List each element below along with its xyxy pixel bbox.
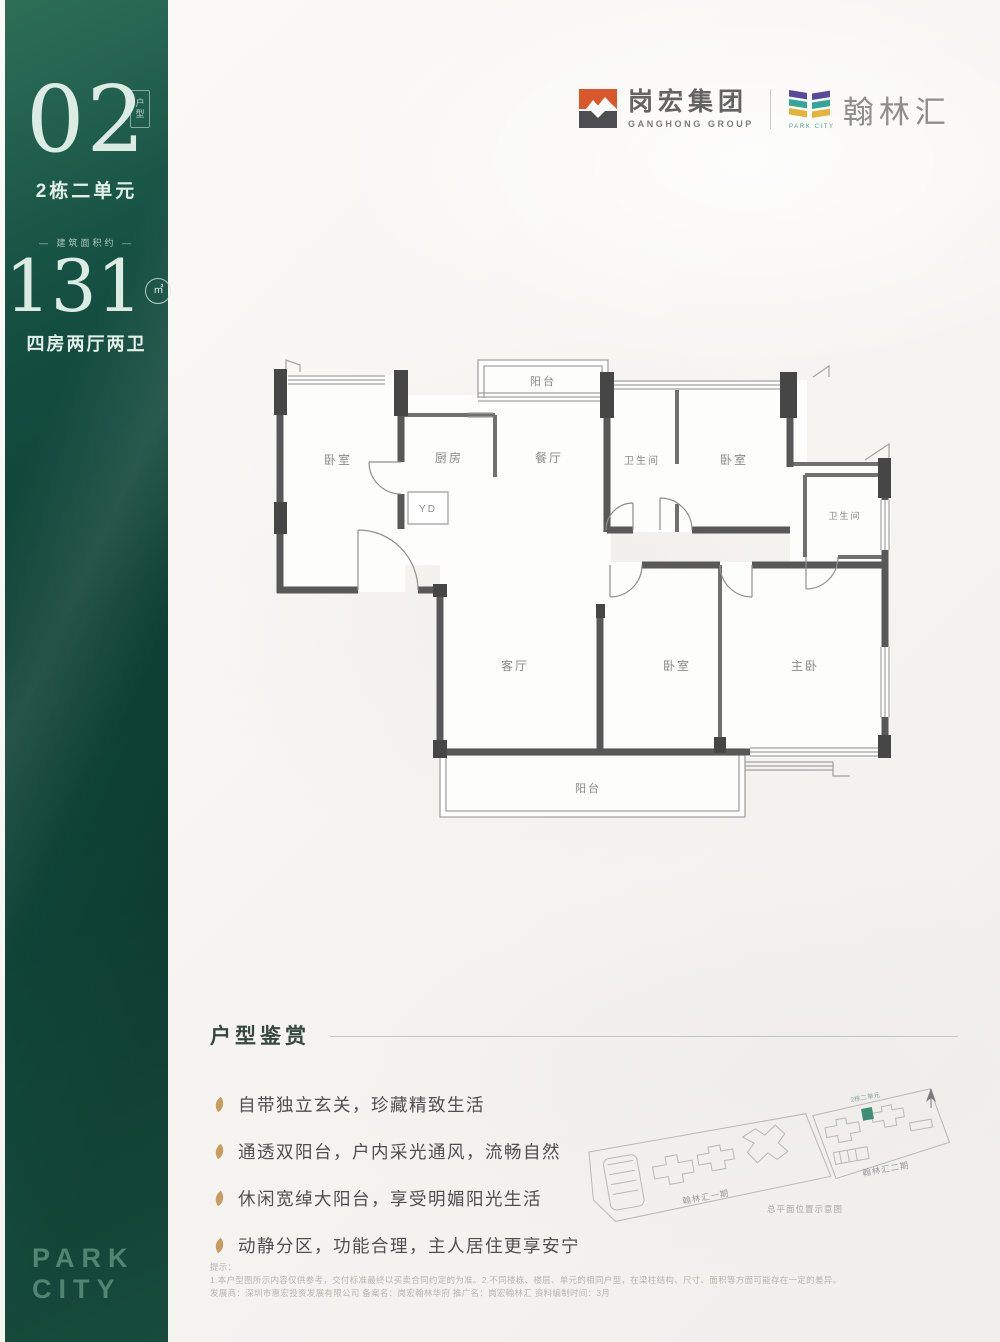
- feature-text-2: 通透双阳台，户内采光通风，流畅自然: [238, 1139, 561, 1164]
- room-label-kitchen: 厨房: [435, 450, 463, 465]
- sitemap-phase1-label: 翰林汇一期: [682, 1188, 731, 1206]
- leaf-bullet-icon: [212, 1097, 227, 1112]
- feature-text-1: 自带独立玄关，珍藏精致生活: [238, 1092, 485, 1117]
- feature-item-2: 通透双阳台，户内采光通风，流畅自然: [214, 1139, 561, 1164]
- disclaimer-title: 提示：: [210, 1261, 880, 1274]
- project-name-cn: 翰林汇: [843, 87, 951, 132]
- room-label-dining: 餐厅: [535, 450, 563, 465]
- room-label-bath1: 卫生间: [624, 454, 660, 467]
- logo-divider: [770, 89, 771, 129]
- feature-item-1: 自带独立玄关，珍藏精致生活: [214, 1092, 485, 1117]
- hanlinhui-logo-icon: PARK CITY: [787, 87, 833, 131]
- room-label-master: 主卧: [791, 659, 819, 673]
- brand-line-park: PARK: [32, 1243, 135, 1274]
- room-label-balcony-top: 阳台: [530, 374, 556, 388]
- feature-text-3: 休闲宽绰大阳台，享受明媚阳光生活: [238, 1186, 542, 1211]
- leaf-bullet-icon: [212, 1238, 227, 1253]
- disclaimer-line1: 1.本户型图所示内容仅供参考，交付标准最终以买卖合同约定的为准。2.不同楼栋、楼…: [210, 1274, 880, 1287]
- leaf-bullet-icon: [212, 1191, 227, 1206]
- disclaimer-line2: 发展商：深圳市惠宏投资发展有限公司 备案名：岗宏翰林华府 推广名：岗宏翰林汇 资…: [210, 1287, 880, 1300]
- room-label-yd: YD: [419, 504, 437, 515]
- layout-description: 四房两厅两卫: [5, 330, 168, 356]
- developer-name-en: GANGHONG GROUP: [628, 119, 754, 129]
- unit-number-row: 02 户型: [5, 74, 168, 166]
- area-label: — 建筑面积约 —: [5, 236, 168, 249]
- disclaimer: 提示： 1.本户型图所示内容仅供参考，交付标准最终以买卖合同约定的为准。2.不同…: [210, 1261, 880, 1301]
- feature-item-3: 休闲宽绰大阳台，享受明媚阳光生活: [214, 1186, 542, 1211]
- highlight-building: [861, 1107, 874, 1121]
- sitemap-caption: 总平面位置示意图: [767, 1204, 843, 1214]
- feature-text-4: 动静分区，功能合理，主人居住更享安宁: [238, 1233, 580, 1258]
- feature-item-4: 动静分区，功能合理，主人居住更享安宁: [214, 1233, 580, 1258]
- unit-number: 02: [26, 74, 147, 166]
- left-brand-band: 02 户型 2栋二单元 — 建筑面积约 — 131㎡ 四房两厅两卫 PARK C…: [5, 0, 168, 1342]
- area-row: 131㎡: [5, 250, 168, 322]
- ganghong-logo-icon: [578, 88, 618, 130]
- room-label-living: 客厅: [501, 658, 529, 673]
- sitemap-highlight-label: 2栋二单元: [850, 1090, 881, 1104]
- area-unit-badge: ㎡: [145, 278, 171, 304]
- project-name-en: PARK CITY: [789, 124, 833, 130]
- unit-name: 2栋二单元: [5, 176, 168, 203]
- leaf-bullet-icon: [212, 1144, 227, 1159]
- section-title-features: 户型鉴赏: [210, 1020, 310, 1050]
- room-label-bedroom3: 卧室: [663, 658, 691, 673]
- area-value: 131: [5, 244, 142, 328]
- room-label-bath2: 卫生间: [828, 510, 861, 521]
- site-plan-map: 翰林汇一期 2栋二单元 翰林汇二期 总平面位置示意图: [575, 1080, 950, 1240]
- unit-type-seal: 户型: [130, 90, 150, 128]
- section-title-rule: [330, 1036, 958, 1037]
- north-arrow-icon: [926, 1088, 936, 1108]
- developer-name-cn: 岗宏集团: [628, 89, 754, 117]
- header-logos: 岗宏集团 GANGHONG GROUP PARK CITY 翰林汇: [578, 80, 951, 138]
- brand-line-city: CITY: [32, 1274, 135, 1305]
- park-city-wordmark: PARK CITY: [32, 1243, 135, 1305]
- room-label-balcony-bottom: 阳台: [575, 781, 601, 795]
- floor-plan: 阳台 卧室 厨房 YD 餐厅 卫生间 卧室 卫生间 客厅 卧室 主卧 阳台: [253, 352, 913, 832]
- room-label-bedroom2: 卧室: [720, 452, 748, 467]
- room-label-bedroom1: 卧室: [324, 452, 352, 467]
